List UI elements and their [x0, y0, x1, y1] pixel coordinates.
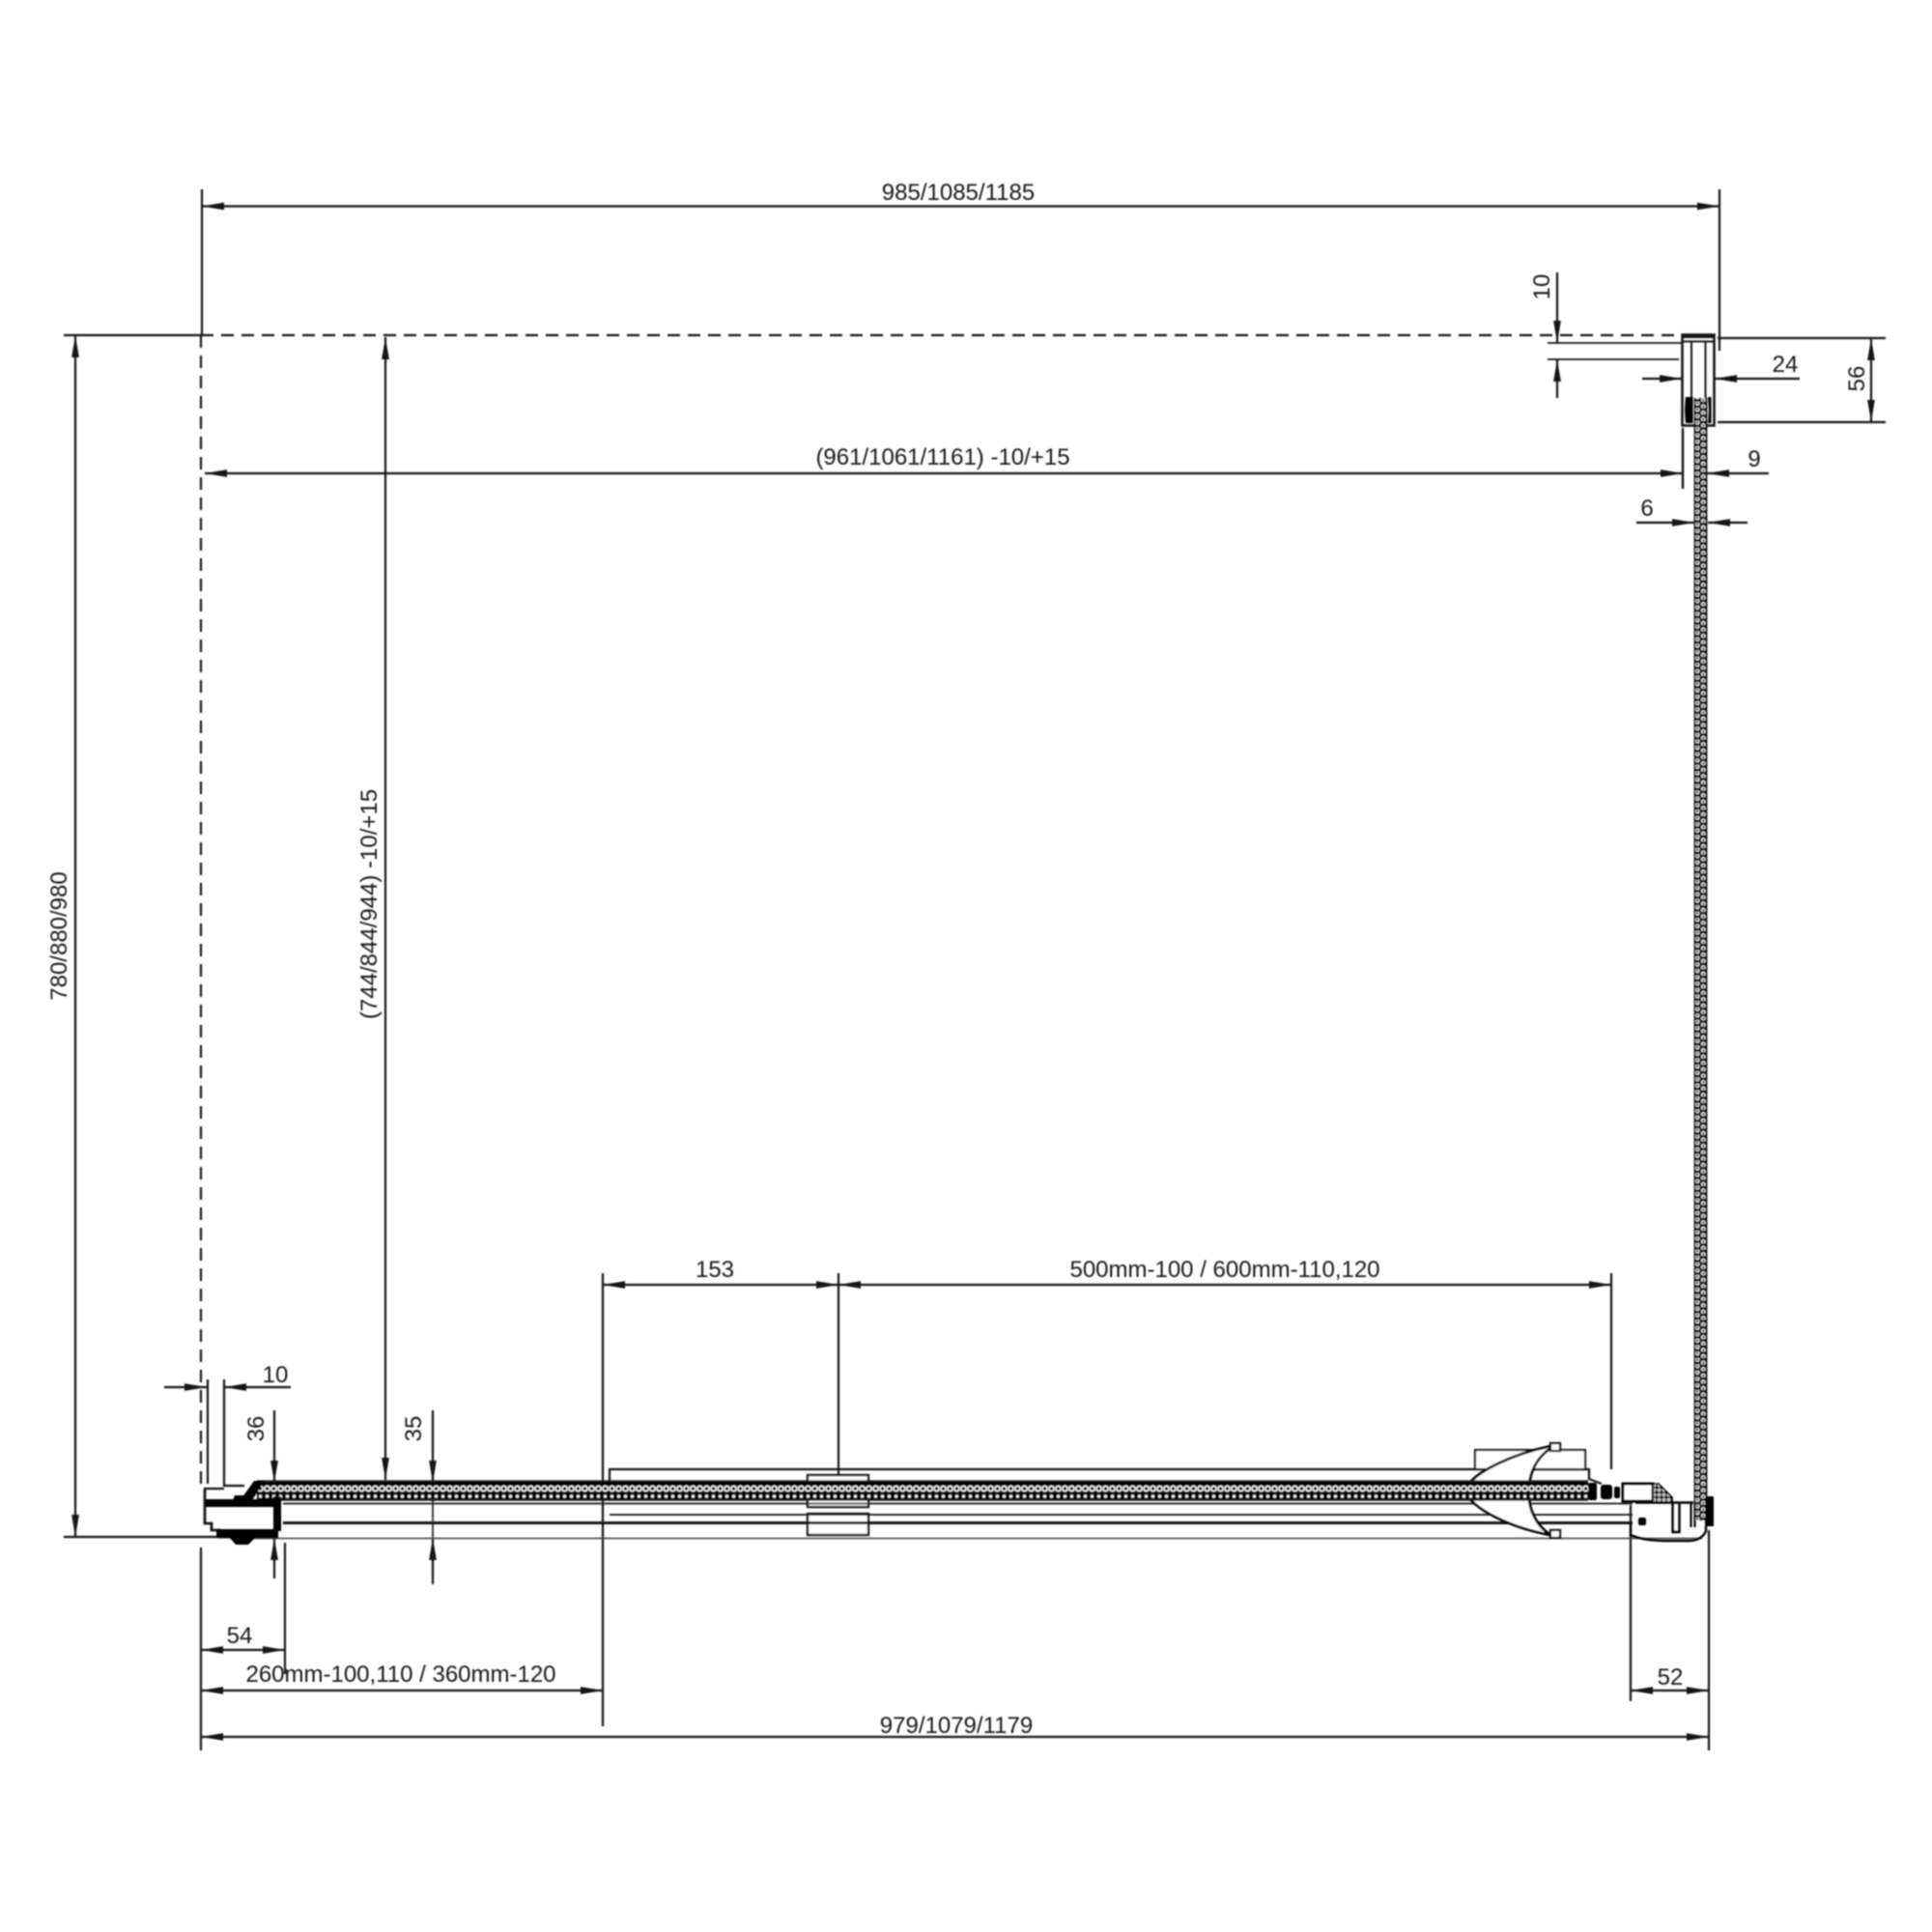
- svg-text:260mm-100,110 / 360mm-120: 260mm-100,110 / 360mm-120: [245, 1662, 555, 1688]
- svg-text:153: 153: [696, 1257, 734, 1283]
- svg-text:56: 56: [1844, 366, 1870, 392]
- svg-text:500mm-100 / 600mm-110,120: 500mm-100 / 600mm-110,120: [1069, 1257, 1379, 1283]
- svg-text:6: 6: [1640, 496, 1653, 522]
- svg-text:979/1079/1179: 979/1079/1179: [880, 1713, 1033, 1739]
- svg-text:35: 35: [401, 1416, 427, 1442]
- svg-text:9: 9: [1747, 446, 1760, 472]
- svg-text:(744/844/944) -10/+15: (744/844/944) -10/+15: [356, 789, 383, 1019]
- svg-text:24: 24: [1773, 352, 1799, 378]
- svg-text:10: 10: [1529, 274, 1555, 300]
- svg-text:780/880/980: 780/880/980: [46, 871, 72, 1000]
- svg-text:(961/1061/1161) -10/+15: (961/1061/1161) -10/+15: [815, 444, 1069, 470]
- svg-text:36: 36: [243, 1416, 270, 1442]
- svg-text:10: 10: [263, 1362, 289, 1388]
- svg-text:52: 52: [1658, 1664, 1684, 1690]
- svg-text:54: 54: [227, 1623, 253, 1649]
- svg-text:985/1085/1185: 985/1085/1185: [882, 180, 1035, 206]
